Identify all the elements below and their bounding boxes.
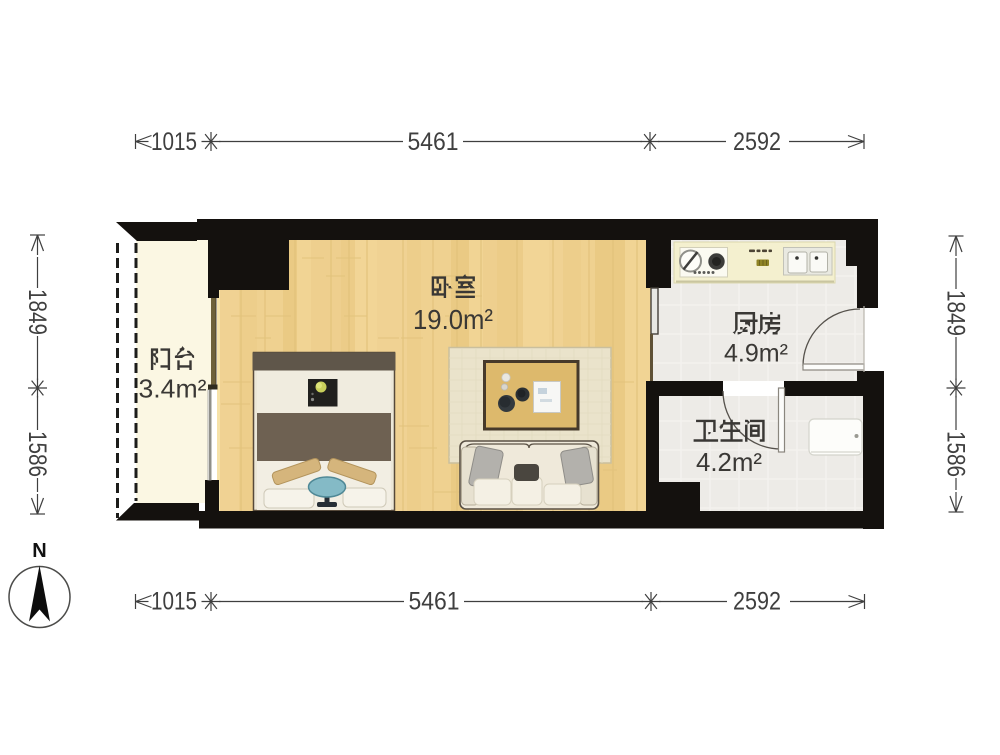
svg-text:5461: 5461 [409, 588, 460, 616]
svg-text:1586: 1586 [941, 431, 969, 477]
svg-text:3.4m²: 3.4m² [139, 373, 207, 403]
svg-text:1586: 1586 [23, 431, 51, 477]
svg-text:1015: 1015 [151, 588, 197, 616]
svg-text:2592: 2592 [733, 588, 781, 616]
svg-text:4.9m²: 4.9m² [724, 340, 788, 368]
svg-text:4.2m²: 4.2m² [696, 447, 762, 477]
svg-text:1849: 1849 [23, 289, 51, 335]
svg-text:1015: 1015 [151, 128, 197, 156]
svg-text:5461: 5461 [408, 128, 459, 156]
svg-text:2592: 2592 [733, 128, 781, 156]
svg-text:19.0m²: 19.0m² [413, 304, 493, 335]
svg-text:N: N [32, 540, 46, 562]
svg-text:1849: 1849 [941, 290, 969, 336]
